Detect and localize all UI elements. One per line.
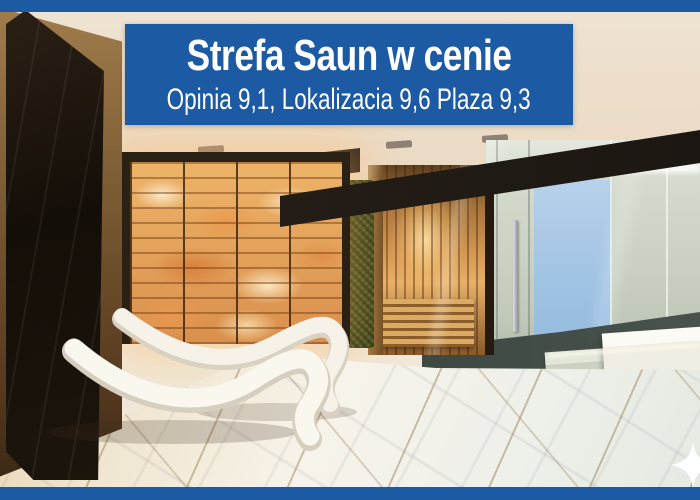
- bottom-accent-bar: [0, 487, 700, 500]
- promo-banner: Strefa Saun w cenie Opinia 9,1, Lokaliza…: [125, 24, 573, 125]
- banner-title: Strefa Saun w cenie: [187, 33, 512, 79]
- promo-image: Strefa Saun w cenie Opinia 9,1, Lokaliza…: [0, 0, 700, 500]
- top-accent-bar: [0, 0, 700, 12]
- banner-subtitle: Opinia 9,1, Lokalizacia 9,6 Plaza 9,3: [167, 83, 531, 116]
- ceiling-vent: [386, 140, 412, 149]
- wave-loungers: [12, 282, 364, 454]
- sparkle-icon: [669, 441, 700, 489]
